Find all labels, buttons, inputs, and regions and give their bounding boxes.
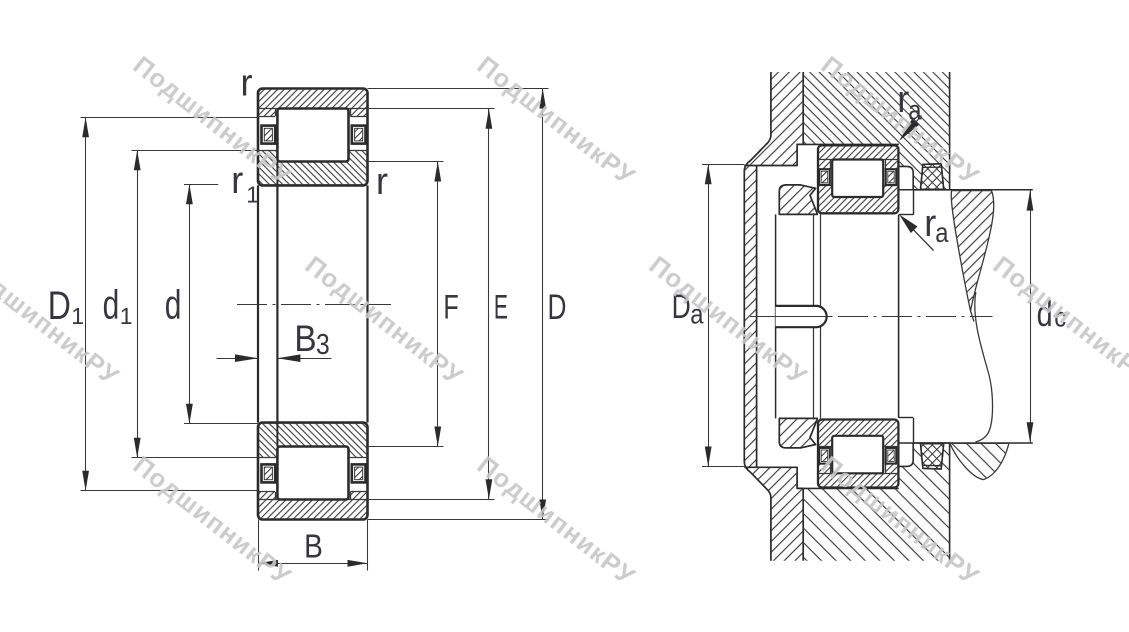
- svg-text:B: B: [304, 528, 323, 565]
- svg-text:1: 1: [246, 182, 259, 208]
- svg-text:3: 3: [316, 328, 330, 360]
- svg-text:d: d: [165, 282, 182, 328]
- svg-text:r: r: [376, 159, 388, 202]
- svg-text:r: r: [231, 158, 243, 201]
- svg-text:E: E: [494, 287, 508, 325]
- svg-text:1: 1: [120, 303, 133, 329]
- svg-text:d: d: [103, 282, 120, 328]
- svg-text:1: 1: [71, 303, 84, 329]
- svg-text:D: D: [548, 287, 567, 327]
- svg-text:ПодшипникРУ: ПодшипникРУ: [472, 451, 640, 591]
- svg-text:ПодшипникРУ: ПодшипникРУ: [472, 51, 640, 191]
- svg-text:B: B: [294, 318, 316, 359]
- svg-text:ПодшипникРУ: ПодшипникРУ: [988, 251, 1129, 391]
- svg-text:a: a: [935, 216, 949, 248]
- svg-text:F: F: [443, 289, 458, 327]
- svg-text:r: r: [241, 61, 253, 104]
